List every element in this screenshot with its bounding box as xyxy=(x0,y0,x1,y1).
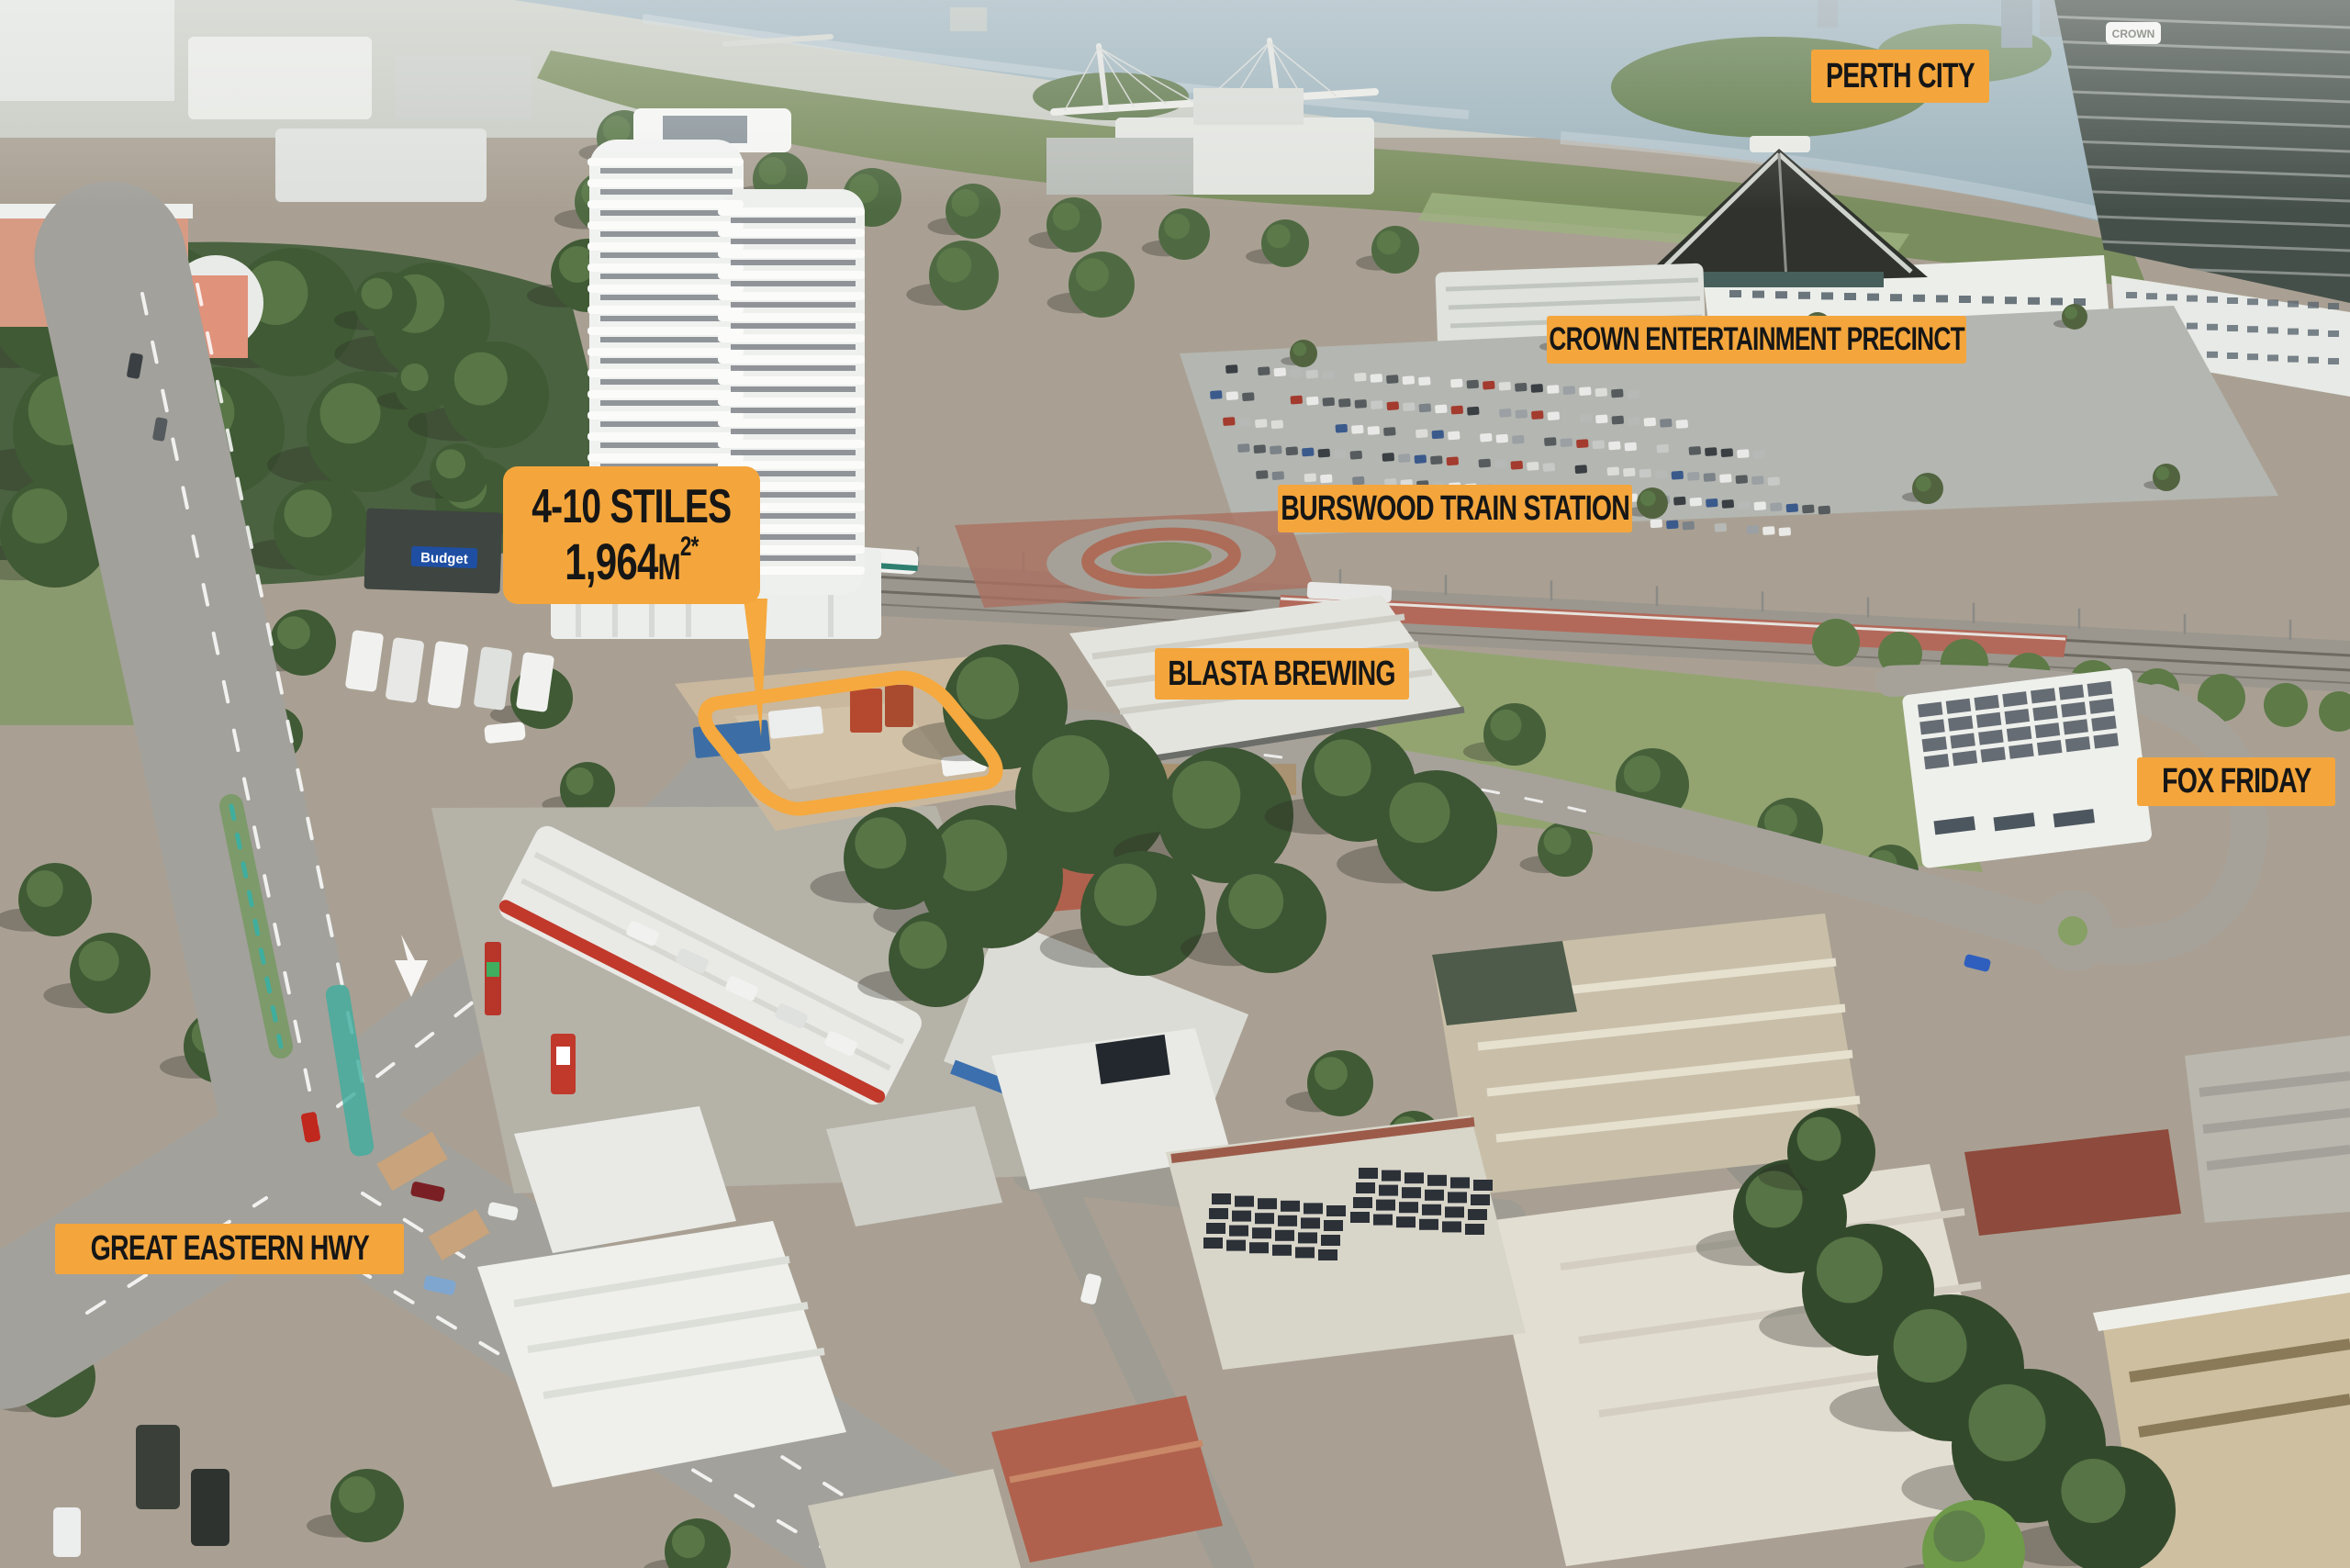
property-area: 1,964M2* xyxy=(565,533,698,591)
fox-friday-lower-roof xyxy=(2185,1036,2350,1223)
red-container xyxy=(850,689,882,733)
aerial-site-photo: CROWN xyxy=(0,0,2350,1568)
annotation-fox-friday: FOX FRIDAY xyxy=(2137,757,2335,806)
aerial-scene: CROWN xyxy=(0,0,2350,1568)
annotation-burswood-station: BURSWOOD TRAIN STATION xyxy=(1278,485,1632,532)
fox-friday-building xyxy=(1902,667,2153,868)
budget-sign-text: Budget xyxy=(420,550,468,567)
annotation-crown-precinct: CROWN ENTERTAINMENT PRECINCT xyxy=(1547,316,1966,364)
property-address: 4-10 STILES xyxy=(532,480,731,533)
annotation-blasta-brewing: BLASTA BREWING xyxy=(1155,648,1409,700)
annotation-great-eastern-hwy: GREAT EASTERN HWY xyxy=(55,1224,404,1274)
annotation-perth-city: PERTH CITY xyxy=(1811,50,1989,103)
annotation-property: 4-10 STILES 1,964M2* xyxy=(503,466,760,604)
